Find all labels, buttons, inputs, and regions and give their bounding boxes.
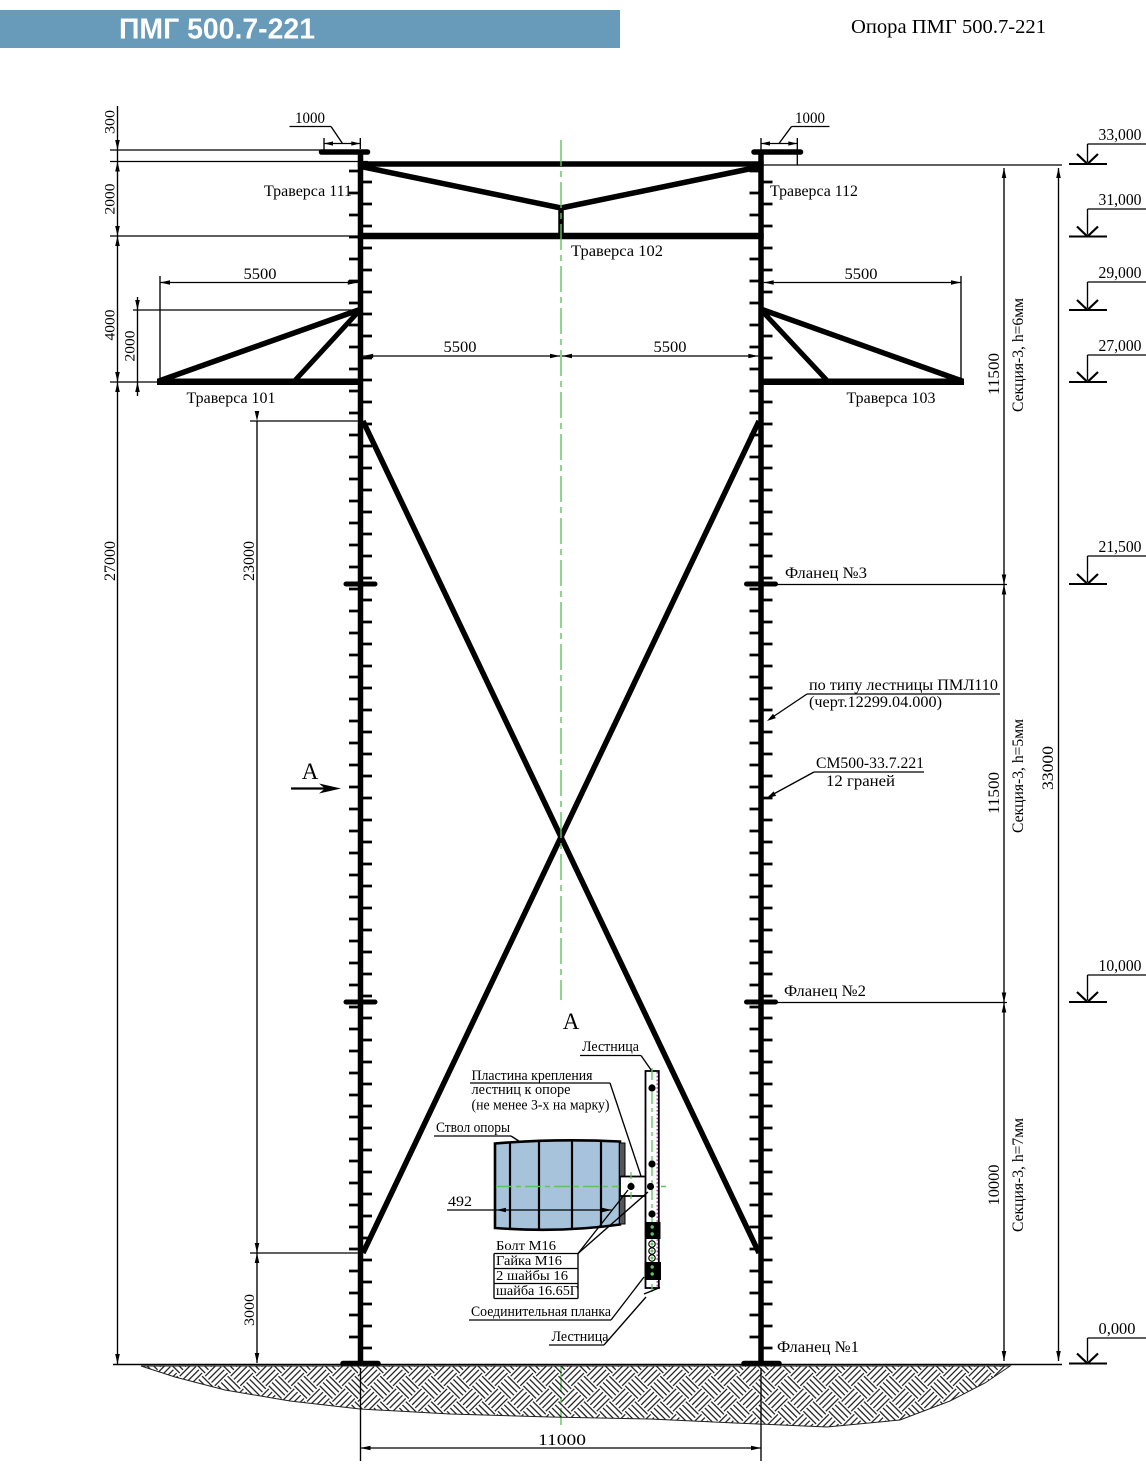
svg-text:Фланец №3: Фланец №3 — [785, 565, 867, 582]
svg-text:33000: 33000 — [1040, 746, 1057, 790]
svg-text:21,500: 21,500 — [1099, 537, 1142, 556]
svg-text:2000: 2000 — [103, 184, 119, 215]
svg-text:Траверса 102: Траверса 102 — [571, 243, 663, 260]
svg-text:Траверса 112: Траверса 112 — [770, 183, 858, 200]
svg-text:Лестница: Лестница — [552, 1329, 610, 1345]
svg-text:лестниц к опоре: лестниц к опоре — [472, 1082, 571, 1098]
svg-text:31,000: 31,000 — [1099, 190, 1142, 209]
svg-text:5500: 5500 — [654, 339, 687, 356]
svg-text:Секция-3, h=7мм: Секция-3, h=7мм — [1010, 1118, 1027, 1232]
svg-text:ПМГ 500.7-221: ПМГ 500.7-221 — [119, 14, 315, 46]
svg-text:300: 300 — [103, 110, 119, 134]
svg-text:10000: 10000 — [986, 1165, 1003, 1206]
svg-text:Фланец №1: Фланец №1 — [777, 1339, 859, 1356]
svg-text:11500: 11500 — [986, 353, 1003, 395]
svg-text:27000: 27000 — [102, 541, 119, 581]
svg-text:492: 492 — [448, 1194, 472, 1210]
svg-text:СМ500-33.7.221: СМ500-33.7.221 — [816, 755, 924, 772]
svg-text:33,000: 33,000 — [1099, 125, 1142, 144]
svg-text:Секция-3, h=6мм: Секция-3, h=6мм — [1010, 298, 1027, 412]
svg-text:Соединительная планка: Соединительная планка — [471, 1304, 612, 1320]
svg-text:Фланец №2: Фланец №2 — [784, 983, 866, 1000]
svg-text:по типу лестницы ПМЛ110: по типу лестницы ПМЛ110 — [809, 677, 998, 694]
svg-text:Гайка М16: Гайка М16 — [496, 1254, 562, 1269]
svg-text:5500: 5500 — [845, 266, 878, 283]
svg-text:А: А — [563, 1009, 580, 1034]
svg-text:А: А — [302, 759, 319, 784]
svg-text:1000: 1000 — [795, 110, 825, 127]
svg-text:12 граней: 12 граней — [826, 773, 895, 790]
svg-text:Болт М16: Болт М16 — [496, 1239, 556, 1254]
svg-text:Опора ПМГ 500.7-221: Опора ПМГ 500.7-221 — [851, 16, 1046, 38]
svg-text:Ствол опоры: Ствол опоры — [436, 1120, 510, 1136]
svg-text:2000: 2000 — [123, 331, 139, 362]
svg-text:1000: 1000 — [295, 110, 325, 127]
svg-text:0,000: 0,000 — [1099, 1319, 1136, 1338]
svg-text:Траверса 103: Траверса 103 — [847, 390, 936, 407]
svg-text:11500: 11500 — [986, 772, 1003, 814]
svg-text:Секция-3, h=5мм: Секция-3, h=5мм — [1010, 719, 1027, 833]
svg-text:Траверса 101: Траверса 101 — [187, 390, 276, 407]
svg-text:10,000: 10,000 — [1099, 956, 1142, 975]
svg-text:Траверса 111: Траверса 111 — [264, 183, 352, 200]
svg-text:29,000: 29,000 — [1099, 263, 1142, 282]
svg-text:23000: 23000 — [241, 541, 258, 581]
svg-text:5500: 5500 — [244, 266, 277, 283]
svg-text:2 шайбы 16: 2 шайбы 16 — [496, 1269, 568, 1284]
svg-text:5500: 5500 — [444, 339, 477, 356]
svg-text:4000: 4000 — [103, 310, 119, 341]
svg-text:(не менее 3-х на марку): (не менее 3-х на марку) — [472, 1098, 610, 1114]
svg-text:(черт.12299.04.000): (черт.12299.04.000) — [809, 694, 942, 711]
svg-text:Лестница: Лестница — [582, 1039, 640, 1055]
svg-text:11000: 11000 — [538, 1432, 586, 1449]
svg-text:27,000: 27,000 — [1099, 336, 1142, 355]
svg-text:шайба 16.65Г: шайба 16.65Г — [496, 1284, 578, 1299]
svg-text:3000: 3000 — [242, 1294, 258, 1326]
